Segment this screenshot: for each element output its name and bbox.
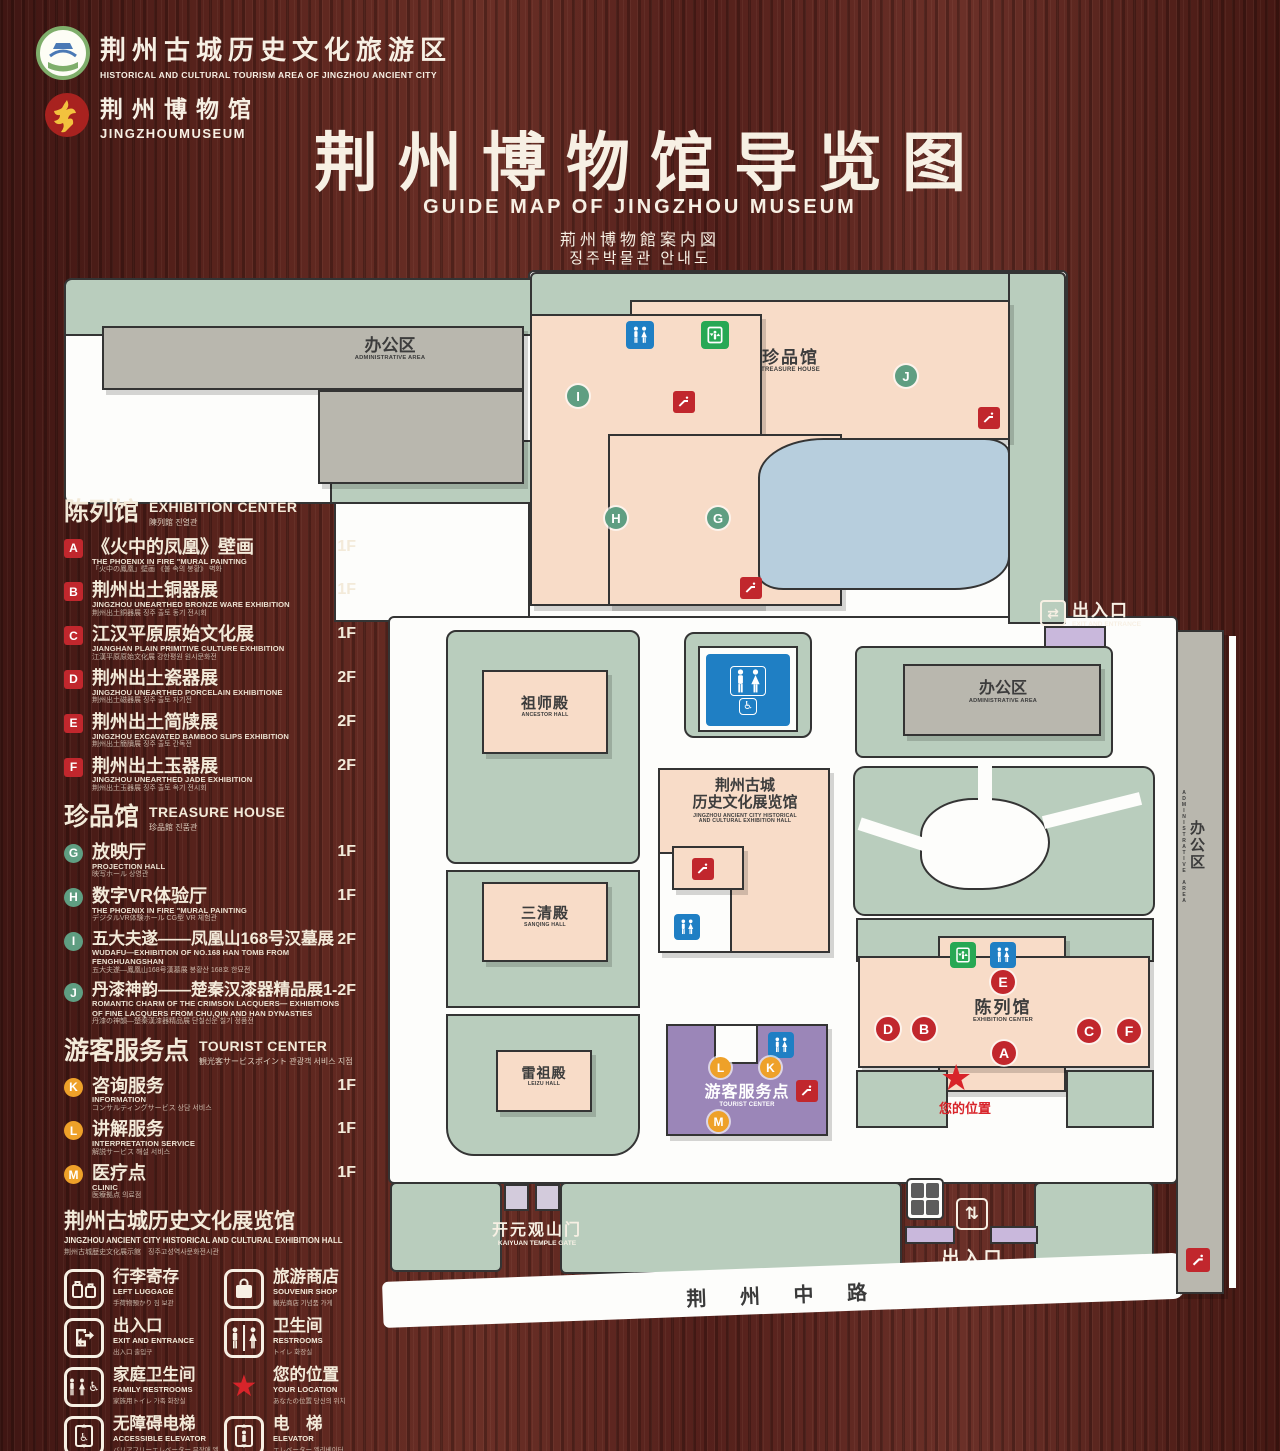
wheelchair-icon: ♿: [88, 1379, 100, 1395]
exit-icon: ⇅: [956, 1198, 988, 1230]
item-sub: 荆州出土簡牘展 징주 출토 간독전: [92, 741, 356, 749]
tourism-area-subtitle: HISTORICAL AND CULTURAL TOURISM AREA OF …: [100, 70, 452, 80]
item-title: 五大夫遂——凤凰山168号汉墓展: [92, 931, 356, 948]
item-en: ROMANTIC CHARM OF THE CRIMSON LACQUERS— …: [92, 999, 342, 1018]
map-marker-E: E: [991, 970, 1015, 994]
restroom-sign-icon: [990, 942, 1016, 968]
legend-label: 出入口: [113, 1318, 194, 1335]
item-en: JINGZHOU EXCAVATED BAMBOO SLIPS EXHIBITI…: [92, 732, 356, 741]
elevator-icon: [224, 1416, 264, 1451]
list-item: F 荆州出土玉器展 JINGZHOU UNEARTHED JADE EXHIBI…: [64, 757, 356, 794]
ancestor-hall-label: 祖师殿 ANCESTOR HALL: [482, 696, 608, 719]
item-floor: 1-2F: [323, 982, 356, 1000]
item-sub: 荆州出土銅器展 징주 출토 동기 전시회: [92, 610, 356, 618]
item-title: 放映厅: [92, 843, 356, 862]
kaiyuan-gate-pier: [504, 1184, 529, 1211]
admin-building-strip: [1176, 630, 1224, 1294]
item-title: 讲解服务: [92, 1120, 356, 1139]
list-item: D 荆州出土瓷器展 JINGZHOU UNEARTHED PORCELAIN E…: [64, 669, 356, 706]
list-item: G 放映厅 PROJECTION HALL 映写ホール 상영관 1F: [64, 843, 356, 880]
gate-building: [905, 1226, 955, 1244]
exhibition-center-label: 陈列馆 EXHIBITION CENTER: [933, 998, 1073, 1023]
kaiyuan-gate-label: 开元观山门 KAIYUAN TEMPLE GATE: [447, 1216, 627, 1247]
item-floor: 1F: [337, 538, 356, 556]
escalator-sign-icon: [692, 858, 714, 880]
legend-souvenir-shop: 旅游商店 SOUVENIR SHOP 観光商店 기념품 가게: [224, 1269, 356, 1309]
section-title-en: EXHIBITION CENTER: [149, 500, 297, 515]
legend-label-sub: トイレ 화장실: [273, 1346, 323, 1356]
treasure-lawn-right: [1008, 272, 1066, 624]
item-sub: 荆州出土玉器展 징주 출토 옥기 전시회: [92, 785, 356, 793]
restroom-sign-icon: [674, 914, 700, 940]
item-floor: 1F: [337, 625, 356, 643]
exit-label-east: 出入口 EXIT AND ENTRANCE: [1072, 596, 1141, 628]
item-sub: 荆州出土磁器展 징주 출토 자기전: [92, 697, 356, 705]
treasure-house-label: 珍品馆 TREASURE HOUSE: [718, 348, 863, 374]
elevator-sign-icon: [950, 942, 976, 968]
item-floor: 2F: [337, 713, 356, 731]
list-item: C 江汉平原原始文化展 JIANGHAN PLAIN PRIMITIVE CUL…: [64, 625, 356, 662]
legend-label: 家庭卫生间: [113, 1367, 196, 1384]
legend-label-sub: 家族用トイレ 가족 화장실: [113, 1395, 196, 1405]
item-floor: 2F: [337, 757, 356, 775]
escalator-sign-icon: [1186, 1248, 1210, 1272]
legend-label: 卫生间: [273, 1318, 323, 1335]
road-label: 荆 州 中 路: [382, 1265, 1185, 1323]
legend-label-sub: 観光商店 기념품 가게: [273, 1297, 339, 1307]
legend-label-en: ELEVATOR: [273, 1434, 344, 1443]
badge-J: J: [64, 983, 83, 1002]
legend-accessible-elevator: ♿ 无障碍电梯 ACCESSIBLE ELEVATOR バリアフリーエレベーター…: [64, 1416, 224, 1451]
legend-label: 行李寄存: [113, 1269, 179, 1286]
elevator-sign-icon: [701, 321, 729, 349]
section-title-sub: 珍品館 진품관: [149, 822, 285, 833]
item-title: 荆州出土玉器展: [92, 757, 356, 776]
your-location-star-icon: ★: [940, 1060, 972, 1096]
admin-area-label-strip-en: ADMINISTRATIVE AREA: [1181, 790, 1187, 904]
svg-text:♿: ♿: [79, 1432, 89, 1444]
family-restroom-icon: ♿: [739, 698, 757, 715]
item-sub: 丹漆の神韻—楚秦漢漆器精品展 단칠신운 칠기 정품전: [92, 1018, 356, 1026]
item-title: 数字VR体验厅: [92, 887, 356, 906]
shopping-bag-icon: [224, 1269, 264, 1309]
item-title: 江汉平原原始文化展: [92, 625, 356, 644]
section-exhibition-header: 陈列馆 EXHIBITION CENTER 陳列館 진열관: [64, 500, 356, 528]
restroom-sign-icon: [768, 1032, 794, 1058]
history-hall-label: 荆州古城 历史文化展览馆 JINGZHOU ANCIENT CITY HISTO…: [660, 778, 830, 825]
exit-icon: ⇄: [1040, 600, 1066, 626]
your-location-star-icon: ★: [224, 1367, 264, 1407]
legend-family-restrooms: ♿ 家庭卫生间 FAMILY RESTROOMS 家族用トイレ 가족 화장실: [64, 1367, 224, 1407]
legend-label-sub: 手荷物預かり 짐 보관: [113, 1297, 179, 1307]
list-item: J 丹漆神韵——楚秦汉漆器精品展 ROMANTIC CHARM OF THE C…: [64, 982, 356, 1027]
your-location-label: 您的位置: [905, 1098, 1025, 1117]
badge-E: E: [64, 714, 83, 733]
item-en: THE PHOENIX IN FIRE "MURAL PAINTING: [92, 557, 356, 566]
history-hall-note-title: 荆州古城历史文化展览馆: [64, 1211, 356, 1233]
luggage-bag: [926, 1183, 939, 1198]
tourism-area-logo-text: 荆州古城历史文化旅游区 HISTORICAL AND CULTURAL TOUR…: [100, 30, 452, 80]
item-floor: 2F: [337, 931, 356, 949]
restroom-icon: [224, 1318, 264, 1358]
item-title: 咨询服务: [92, 1077, 356, 1096]
legend-grid: 行李寄存 LEFT LUGGAGE 手荷物預かり 짐 보관 旅游商店 SOUVE…: [64, 1269, 356, 1451]
section-title-sub: 陳列館 진열관: [149, 517, 297, 528]
guide-map-poster: 荆州古城历史文化旅游区 HISTORICAL AND CULTURAL TOUR…: [0, 0, 1280, 1451]
item-sub: 江漢平原原始文化展 강한평원 원시문화전: [92, 654, 356, 662]
escalator-sign-icon: [796, 1080, 818, 1102]
legend-label: 无障碍电梯: [113, 1416, 224, 1433]
item-sub: 解説サービス 해설 서비스: [92, 1149, 356, 1157]
section-title: 陈列馆: [64, 500, 139, 525]
item-floor: 1F: [337, 1164, 356, 1182]
garden-path: [978, 766, 992, 802]
item-floor: 1F: [337, 581, 356, 599]
item-en: JINGZHOU UNEARTHED BRONZE WARE EXHIBITIO…: [92, 600, 356, 609]
legend-left-luggage: 行李寄存 LEFT LUGGAGE 手荷物預かり 짐 보관: [64, 1269, 224, 1309]
section-title-sub: 観光客サービスポイント 관광객 서비스 지점: [199, 1056, 353, 1067]
luggage-bag: [911, 1200, 924, 1215]
badge-B: B: [64, 582, 83, 601]
restroom-mf-icon: [730, 666, 766, 696]
item-sub: コンサルティングサービス 상담 서비스: [92, 1105, 356, 1113]
map-marker-D: D: [876, 1017, 900, 1041]
sanqing-hall-label: 三清殿 SANQING HALL: [482, 906, 608, 929]
gate-building: [990, 1226, 1038, 1244]
item-en: JINGZHOU UNEARTHED JADE EXHIBITION: [92, 775, 356, 784]
legend-label-sub: あなたの位置 당신의 위치: [273, 1395, 346, 1405]
accessible-elevator-icon: ♿: [64, 1416, 104, 1451]
item-floor: 1F: [337, 887, 356, 905]
item-title: 《火中的凤凰》壁画: [92, 538, 356, 557]
item-title: 医疗点: [92, 1164, 356, 1183]
legend-label: 旅游商店: [273, 1269, 339, 1286]
list-item: A 《火中的凤凰》壁画 THE PHOENIX IN FIRE "MURAL P…: [64, 538, 356, 575]
left-luggage-icon: [906, 1178, 944, 1220]
item-en: CLINIC: [92, 1183, 356, 1192]
map-marker-G: G: [707, 507, 729, 529]
badge-A: A: [64, 539, 83, 558]
exit-icon: [64, 1318, 104, 1358]
item-en: THE PHOENIX IN FIRE "MURAL PAINTING: [92, 906, 356, 915]
section-title-en: TREASURE HOUSE: [149, 805, 285, 820]
map-marker-H: H: [605, 507, 627, 529]
legend-label-en: YOUR LOCATION: [273, 1385, 346, 1394]
admin-area-label-east: 办公区 ADMINISTRATIVE AREA: [913, 680, 1093, 704]
map-marker-B: B: [912, 1017, 936, 1041]
admin-area-label-strip: 办公区: [1186, 820, 1207, 871]
escalator-sign-icon: [978, 407, 1000, 429]
legend-label-en: LEFT LUGGAGE: [113, 1287, 179, 1296]
item-floor: 1F: [337, 1077, 356, 1095]
pond: [758, 438, 1010, 590]
escalator-sign-icon: [740, 577, 762, 599]
list-item: H 数字VR体验厅 THE PHOENIX IN FIRE "MURAL PAI…: [64, 887, 356, 924]
item-floor: 2F: [337, 669, 356, 687]
tourism-area-title: 荆州古城历史文化旅游区: [100, 30, 452, 67]
item-sub: 医療拠点 의료점: [92, 1192, 356, 1200]
section-title: 珍品馆: [64, 805, 139, 830]
legend-your-location: ★ 您的位置 YOUR LOCATION あなたの位置 당신의 위치: [224, 1367, 356, 1407]
map-marker-A: A: [992, 1041, 1016, 1065]
history-hall-note-sub: 荆州古城歴史文化展示館 징주고성역사문화전시관: [64, 1247, 356, 1257]
admin-area-label-topleft: 办公区 ADMINISTRATIVE AREA: [300, 336, 480, 362]
legend-exit: 出入口 EXIT AND ENTRANCE 出入口 출입구: [64, 1318, 224, 1358]
section-title-en: TOURIST CENTER: [199, 1039, 353, 1054]
map-marker-L: L: [710, 1057, 731, 1078]
admin-building-topleft-wing: [318, 390, 524, 484]
legend-restrooms: 卫生间 RESTROOMS トイレ 화장실: [224, 1318, 356, 1358]
badge-G: G: [64, 844, 83, 863]
item-sub: デジタルVR体験ホール CG型 VR 체험관: [92, 915, 356, 923]
list-item: I 五大夫遂——凤凰山168号汉墓展 WUDAFU—EXHIBITION OF …: [64, 931, 356, 976]
kaiyuan-gate-pier: [535, 1184, 560, 1211]
badge-L: L: [64, 1121, 83, 1140]
history-hall-note-en: JINGZHOU ANCIENT CITY HISTORICAL AND CUL…: [64, 1236, 356, 1245]
list-item: E 荆州出土简牍展 JINGZHOU EXCAVATED BAMBOO SLIP…: [64, 713, 356, 750]
luggage-bag: [911, 1183, 924, 1198]
legend-label-sub: バリアフリーエレベーター 무장애 엘리베이터: [113, 1444, 224, 1451]
exhibition-lawn-right: [1066, 1070, 1154, 1128]
divider: [243, 1325, 245, 1351]
section-title: 游客服务点: [64, 1039, 189, 1064]
item-title: 丹漆神韵——楚秦汉漆器精品展: [92, 982, 356, 999]
item-sub: 映写ホール 상영관: [92, 871, 356, 879]
badge-M: M: [64, 1165, 83, 1184]
map-marker-C: C: [1077, 1019, 1101, 1043]
list-item: L 讲解服务 INTERPRETATION SERVICE 解説サービス 해설 …: [64, 1120, 356, 1157]
badge-I: I: [64, 932, 83, 951]
escalator-sign-icon: [673, 391, 695, 413]
legend-label-en: ACCESSIBLE ELEVATOR: [113, 1434, 224, 1443]
family-restroom-icon: ♿: [64, 1367, 104, 1407]
badge-F: F: [64, 758, 83, 777]
leizu-hall-label: 雷祖殿 LEIZU HALL: [496, 1066, 592, 1087]
item-en: PROJECTION HALL: [92, 862, 356, 871]
legend-label-sub: エレベーター 엘리베이터: [273, 1444, 344, 1451]
badge-H: H: [64, 888, 83, 907]
legend-label-en: FAMILY RESTROOMS: [113, 1385, 196, 1394]
map-marker-M: M: [708, 1111, 729, 1132]
item-en: INTERPRETATION SERVICE: [92, 1139, 356, 1148]
list-item: M 医疗点 CLINIC 医療拠点 의료점 1F: [64, 1164, 356, 1201]
badge-C: C: [64, 626, 83, 645]
history-hall-note: 荆州古城历史文化展览馆 JINGZHOU ANCIENT CITY HISTOR…: [64, 1211, 356, 1257]
strip-path: [1229, 636, 1236, 1288]
list-item: K 咨询服务 INFORMATION コンサルティングサービス 상담 서비스 1…: [64, 1077, 356, 1114]
item-sub: 五大夫遂—鳳凰山168号漢墓展 봉황산 168호 한묘전: [92, 967, 356, 975]
legend-panel: 陈列馆 EXHIBITION CENTER 陳列館 진열관 A 《火中的凤凰》壁…: [64, 500, 356, 1451]
page-title-ko: 징주박물관 안내도: [0, 247, 1280, 268]
item-en: INFORMATION: [92, 1095, 356, 1104]
item-en: JIANGHAN PLAIN PRIMITIVE CULTURE EXHIBIT…: [92, 644, 356, 653]
page-title-en: GUIDE MAP OF JINGZHOU MUSEUM: [0, 196, 1280, 219]
left-luggage-icon: [64, 1269, 104, 1309]
legend-label: 您的位置: [273, 1367, 346, 1384]
item-title: 荆州出土铜器展: [92, 581, 356, 600]
legend-label-en: SOUVENIR SHOP: [273, 1287, 339, 1296]
item-sub: 「火中の鳳凰」壁画 《불 속의 봉황》 벽화: [92, 566, 356, 574]
restroom-sign-icon: [626, 321, 654, 349]
tourism-area-logo: [36, 26, 90, 80]
tourism-area-logo-icon: [36, 26, 90, 80]
item-title: 荆州出土简牍展: [92, 713, 356, 732]
legend-elevator: 电 梯 ELEVATOR エレベーター 엘리베이터: [224, 1416, 356, 1451]
section-treasure-header: 珍品馆 TREASURE HOUSE 珍品館 진품관: [64, 805, 356, 833]
item-floor: 1F: [337, 843, 356, 861]
list-item: B 荆州出土铜器展 JINGZHOU UNEARTHED BRONZE WARE…: [64, 581, 356, 618]
badge-D: D: [64, 670, 83, 689]
map-marker-I: I: [567, 385, 589, 407]
item-title: 荆州出土瓷器展: [92, 669, 356, 688]
page-title: 荆州博物馆导览图: [0, 112, 1280, 204]
map-marker-K: K: [760, 1057, 781, 1078]
map-marker-F: F: [1117, 1019, 1141, 1043]
section-tourist-header: 游客服务点 TOURIST CENTER 観光客サービスポイント 관광객 서비스…: [64, 1039, 356, 1067]
badge-K: K: [64, 1078, 83, 1097]
legend-label-en: RESTROOMS: [273, 1336, 323, 1345]
map-marker-J: J: [895, 365, 917, 387]
luggage-bag: [926, 1200, 939, 1215]
legend-label-sub: 出入口 출입구: [113, 1346, 194, 1356]
legend-label: 电 梯: [273, 1416, 344, 1433]
item-en: JINGZHOU UNEARTHED PORCELAIN EXHIBITIONE: [92, 688, 356, 697]
item-floor: 1F: [337, 1120, 356, 1138]
legend-label-en: EXIT AND ENTRANCE: [113, 1336, 194, 1345]
item-en: WUDAFU—EXHIBITION OF NO.168 HAN TOMB FRO…: [92, 948, 356, 967]
restroom-sign-icon: ♿: [706, 654, 790, 726]
